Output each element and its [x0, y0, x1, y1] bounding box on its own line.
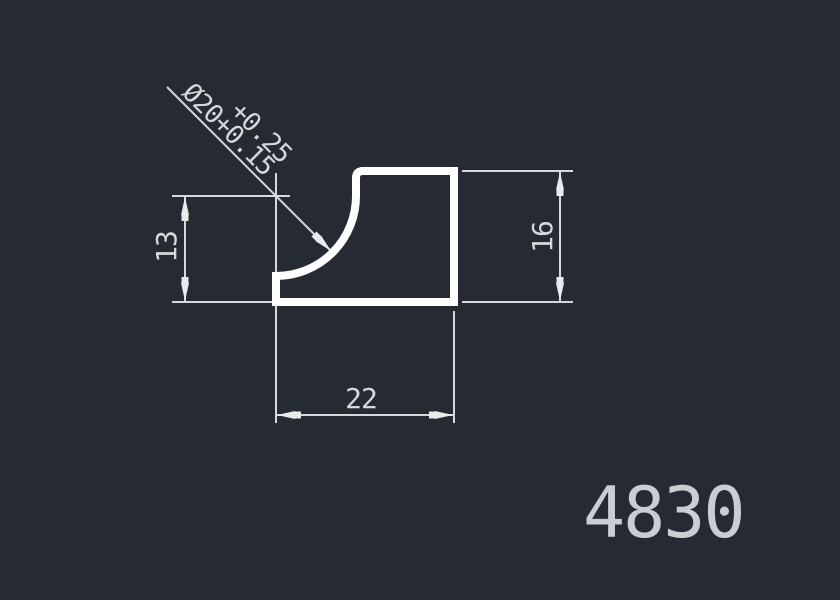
- profile-outline: [276, 171, 454, 302]
- cad-drawing-canvas[interactable]: 13 16 22 +0.2: [0, 0, 840, 600]
- leader-text-group: +0.25 Ø20+0.15: [176, 63, 297, 184]
- arrow-down-icon: [181, 283, 189, 301]
- arrow-up-icon: [556, 172, 564, 190]
- dimension-overall-height: 16: [462, 171, 573, 302]
- arrow-down-tail: [182, 277, 189, 284]
- arrow-down-icon: [556, 283, 564, 301]
- dimension-value-22: 22: [345, 382, 377, 415]
- drawing-svg: 13 16 22 +0.2: [0, 0, 840, 600]
- arrow-left-icon: [277, 411, 295, 419]
- leader-callout-arc-diameter: +0.25 Ø20+0.15: [167, 63, 331, 251]
- arrow-right-icon: [435, 411, 453, 419]
- dimension-overall-width: 22: [276, 311, 454, 423]
- arrow-down-tail: [557, 277, 564, 284]
- arrow-up-icon: [181, 197, 189, 215]
- dimension-value-16: 16: [526, 221, 559, 253]
- arrow-up-tail: [557, 189, 564, 196]
- arrow-up-tail: [182, 214, 189, 221]
- part-number-label: 4830: [583, 472, 744, 554]
- arrow-right-tail: [429, 412, 436, 419]
- dimension-value-13: 13: [150, 231, 183, 263]
- arrow-left-tail: [294, 412, 301, 419]
- dimension-left-height: 13: [150, 196, 274, 302]
